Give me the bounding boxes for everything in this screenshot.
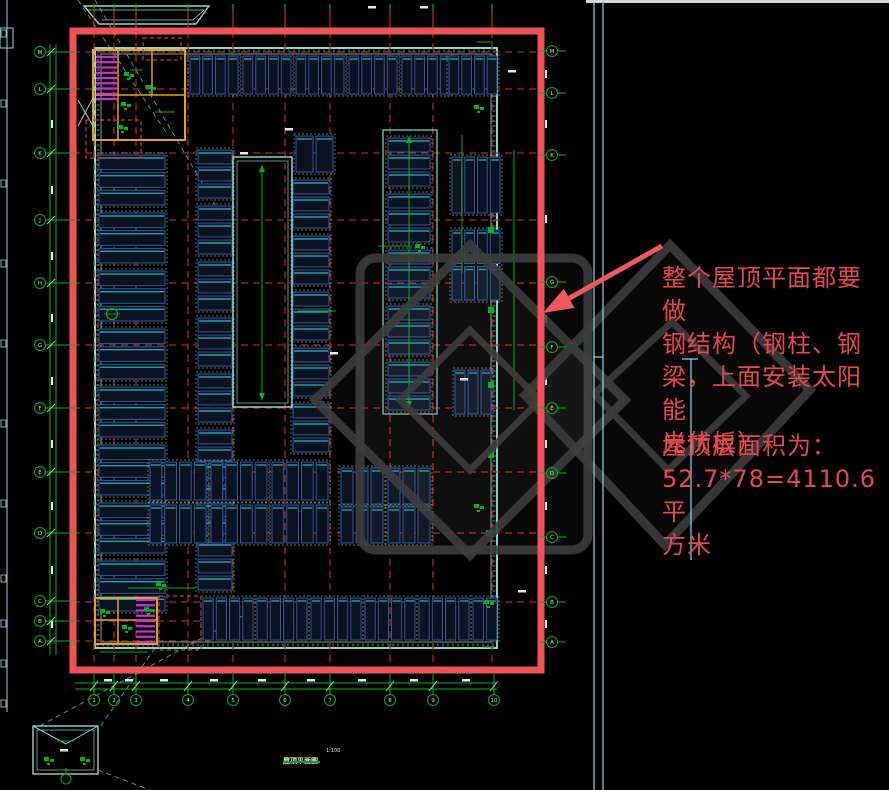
- solar-panel: [243, 56, 253, 94]
- solar-panel: [255, 462, 267, 500]
- axis-bubble-label: L: [550, 91, 554, 97]
- solar-panel: [402, 56, 412, 94]
- dim-text-mark: [51, 440, 53, 448]
- axis-bubble-label: 9: [431, 698, 435, 704]
- solar-panel: [99, 231, 165, 246]
- solar-panel: [198, 223, 232, 237]
- solar-panel: [198, 262, 232, 276]
- axis-bubble-label: D: [38, 531, 42, 537]
- solar-panel: [297, 598, 307, 640]
- solar-panel: [316, 136, 333, 172]
- solar-panel: [216, 598, 226, 640]
- axis-bubble-label: M: [38, 50, 43, 56]
- dim-text-mark: [358, 679, 366, 682]
- green-marker: [80, 757, 85, 761]
- green-marker: [159, 588, 162, 590]
- green-marker: [127, 104, 131, 107]
- green-marker: [44, 757, 49, 761]
- solar-panel: [99, 271, 165, 286]
- detail-box-bubble: [61, 774, 71, 784]
- green-marker: [149, 91, 152, 93]
- detail-callout-box: [33, 726, 98, 784]
- solar-panel: [99, 155, 165, 170]
- solar-panel: [99, 289, 165, 304]
- grid-tails: [94, 4, 492, 31]
- solar-panel: [99, 248, 165, 263]
- solar-panel: [293, 180, 329, 194]
- centerline-arrow-bottom: [259, 393, 265, 400]
- solar-panel: [338, 598, 348, 640]
- frame-glyph: [1, 575, 6, 582]
- axis-bubble-label: 4: [186, 698, 190, 704]
- green-marker: [144, 607, 149, 611]
- solar-panel: [194, 462, 206, 500]
- solar-panel: [459, 598, 469, 640]
- solar-panel: [255, 505, 267, 543]
- axis-bubble-label: A: [550, 640, 554, 646]
- solar-panel: [465, 157, 475, 213]
- dim-text-mark: [518, 590, 526, 593]
- axis-bubble-label: G: [550, 280, 554, 286]
- green-marker: [83, 763, 86, 765]
- solar-panel: [351, 598, 361, 640]
- axis-bubble-label: H: [38, 281, 42, 287]
- green-marker: [415, 244, 420, 248]
- solar-panel: [432, 598, 442, 640]
- dim-text-mark: [285, 128, 293, 131]
- axis-bubble-label: 6: [283, 698, 287, 704]
- dim-text-mark: [420, 6, 428, 9]
- dim-text-mark: [104, 679, 112, 682]
- solar-panel: [293, 421, 329, 435]
- green-marker: [477, 111, 480, 113]
- frame-glyph: [1, 700, 6, 707]
- solar-panel: [165, 462, 177, 500]
- frame-glyph: [1, 500, 6, 507]
- axis-bubble-label: A: [38, 639, 42, 645]
- green-marker: [118, 125, 123, 129]
- cad-viewport[interactable]: MLKJHGFEDCBAMLKGFEDCBA12345678910 整个屋顶平面…: [0, 0, 889, 790]
- green-marker: [50, 759, 54, 762]
- solar-panel: [270, 598, 280, 640]
- axis-bubble-label: K: [38, 151, 42, 157]
- dim-text-mark: [125, 679, 133, 682]
- axis-bubble-label: E: [38, 470, 42, 476]
- solar-panel: [293, 253, 329, 267]
- dim-text-mark: [368, 6, 376, 9]
- frame-glyph: [1, 620, 6, 627]
- solar-panel: [194, 505, 206, 543]
- green-marker: [127, 78, 130, 80]
- axis-bubble-label: E: [550, 406, 554, 412]
- solar-panel: [487, 56, 497, 94]
- axis-bubble-label: 2: [112, 698, 116, 704]
- axis-bubble-label: 7: [328, 698, 332, 704]
- solar-panel: [341, 507, 353, 543]
- annotation-note-roof-area: 屋顶层面积为： 52.7*78=4110.6平 方米: [662, 430, 884, 562]
- solar-panel: [462, 56, 472, 94]
- axis-bubble-label: B: [38, 619, 42, 625]
- frame-glyph: [1, 660, 6, 667]
- green-marker: [162, 584, 166, 587]
- solar-panel: [180, 505, 192, 543]
- solar-panel: [415, 56, 425, 94]
- solar-panel: [211, 505, 223, 543]
- solar-panel: [293, 292, 329, 306]
- solar-panel: [405, 598, 415, 640]
- frame-glyph: [1, 420, 6, 427]
- solar-panel: [293, 348, 329, 362]
- solar-panel: [365, 598, 375, 640]
- solar-panel: [309, 56, 319, 94]
- frame-glyph: [1, 30, 6, 37]
- solar-panel: [293, 326, 329, 340]
- solar-panel: [198, 391, 232, 405]
- green-marker: [421, 246, 425, 249]
- wall-node-marker: [488, 227, 494, 233]
- solar-panel: [198, 374, 232, 388]
- dim-text-mark: [410, 679, 418, 682]
- axis-bubble-label: J: [38, 218, 41, 224]
- green-marker: [121, 102, 126, 106]
- solar-panel: [428, 56, 438, 94]
- green-marker: [487, 606, 490, 608]
- axis-bubble-label: F: [38, 406, 41, 412]
- solar-panel: [473, 598, 484, 640]
- solar-panel: [293, 197, 329, 211]
- dim-text-mark: [210, 679, 218, 682]
- solar-panel: [293, 214, 329, 228]
- title-underline: [283, 761, 320, 763]
- solar-panel: [349, 56, 359, 94]
- solar-panel: [99, 364, 165, 379]
- solar-panel: [296, 56, 306, 94]
- dim-text-mark: [51, 377, 53, 385]
- solar-panel: [198, 542, 232, 556]
- centerline-arrow-top: [259, 165, 265, 172]
- dim-text-mark: [545, 70, 547, 78]
- green-marker: [150, 609, 154, 612]
- solar-panel: [198, 430, 232, 444]
- dim-text-mark: [545, 566, 547, 574]
- green-marker: [484, 600, 489, 604]
- dim-text-mark: [545, 620, 547, 628]
- solar-panel: [452, 157, 462, 213]
- leader-line: [98, 770, 150, 790]
- solar-panel: [316, 505, 328, 543]
- solar-panel: [190, 56, 200, 94]
- solar-panel: [99, 173, 165, 188]
- solar-panel: [99, 579, 165, 594]
- solar-panel: [228, 56, 238, 94]
- frame-glyph: [1, 340, 6, 347]
- solar-panel: [281, 56, 291, 94]
- green-marker: [480, 107, 484, 110]
- solar-panel: [293, 270, 329, 284]
- solar-panel: [256, 56, 266, 94]
- solar-panel: [198, 240, 232, 254]
- green-marker: [47, 763, 50, 765]
- axis-bubble-label: 1: [92, 698, 96, 704]
- axis-bubble-label: 8: [388, 698, 392, 704]
- axis-bubble-label: G: [38, 343, 42, 349]
- axis-bubble-label: M: [550, 49, 555, 55]
- solar-panel: [198, 408, 232, 422]
- drawing-scale: 1:100: [326, 748, 340, 754]
- green-marker: [152, 87, 156, 90]
- top-edge-strip: [586, 0, 889, 3]
- solar-panel: [226, 462, 238, 500]
- solar-panel: [269, 56, 279, 94]
- dim-text-mark: [51, 502, 53, 510]
- solar-panel: [334, 56, 344, 94]
- frame-glyph: [1, 260, 6, 267]
- axis-bubble-label: 10: [491, 698, 498, 704]
- solar-panel: [362, 56, 372, 94]
- solar-panel: [150, 505, 162, 543]
- axis-bubble-label: C: [38, 599, 42, 605]
- dim-text-mark: [545, 215, 547, 223]
- solar-panel: [198, 184, 232, 198]
- solar-panel: [378, 598, 388, 640]
- green-marker: [100, 609, 105, 613]
- solar-panel: [198, 447, 232, 461]
- solar-panel: [302, 462, 314, 500]
- axis-bubble-label: D: [550, 471, 554, 477]
- green-marker: [86, 759, 90, 762]
- axis-bubble-label: C: [550, 535, 554, 541]
- solar-panel: [316, 462, 328, 500]
- green-marker: [125, 631, 128, 633]
- green-marker: [474, 105, 479, 109]
- solar-panel: [241, 505, 253, 543]
- solar-panel: [198, 279, 232, 293]
- dim-text-mark: [462, 679, 470, 682]
- solar-panel: [99, 347, 165, 362]
- green-marker: [124, 127, 128, 130]
- green-marker: [122, 625, 127, 629]
- solar-panel: [324, 598, 334, 640]
- solar-panel: [198, 559, 232, 573]
- solar-panel: [296, 136, 313, 172]
- solar-panel: [311, 598, 321, 640]
- solar-panel: [241, 462, 253, 500]
- solar-panel: [99, 190, 165, 205]
- solar-panel: [226, 505, 238, 543]
- axis-bubble-label: 3: [134, 698, 138, 704]
- green-marker: [124, 72, 129, 76]
- solar-panel: [99, 445, 165, 460]
- solar-panel: [272, 462, 284, 500]
- solar-panel: [198, 296, 232, 310]
- solar-panel: [490, 157, 500, 213]
- solar-panel: [446, 598, 456, 640]
- solar-panel: [302, 505, 314, 543]
- solar-panel: [165, 505, 177, 543]
- solar-panel: [211, 462, 223, 500]
- green-marker: [147, 613, 150, 615]
- solar-panel: [375, 56, 385, 94]
- solar-panel: [99, 405, 165, 420]
- dim-text-mark: [51, 252, 53, 260]
- dim-text-mark: [240, 152, 248, 155]
- solar-panel: [203, 56, 213, 94]
- dim-text-mark: [545, 120, 547, 128]
- roof-canopy-outline: [84, 6, 209, 24]
- green-marker: [418, 250, 421, 252]
- solar-panel: [99, 213, 165, 228]
- axis-bubble-label: 5: [231, 698, 235, 704]
- green-marker: [490, 602, 494, 605]
- solar-panel: [341, 468, 353, 504]
- solar-panel: [293, 438, 329, 452]
- solar-panel: [99, 422, 165, 437]
- solar-panel: [99, 329, 165, 344]
- drawing-title-block: 屋顶平面图1:100: [283, 748, 340, 767]
- frame-glyph: [1, 180, 6, 187]
- solar-panel: [293, 365, 329, 379]
- solar-panel: [392, 598, 402, 640]
- green-marker: [121, 131, 124, 133]
- dim-text-mark: [60, 749, 68, 752]
- solar-panel: [293, 236, 329, 250]
- solar-panel: [99, 387, 165, 402]
- solar-panel: [198, 335, 232, 349]
- solar-panel: [203, 598, 213, 640]
- solar-panel: [99, 561, 165, 576]
- dim-text-mark: [258, 679, 266, 682]
- solar-panel: [287, 505, 299, 543]
- solar-panel: [419, 598, 429, 640]
- solar-panel: [198, 352, 232, 366]
- dim-text-mark: [508, 70, 516, 73]
- green-marker: [106, 611, 110, 614]
- dim-text-mark: [330, 352, 338, 355]
- solar-panel: [216, 56, 226, 94]
- solar-panel: [198, 167, 232, 181]
- green-marker: [156, 582, 161, 586]
- solar-panel: [287, 462, 299, 500]
- solar-panel: [272, 505, 284, 543]
- solar-panel: [243, 598, 253, 640]
- solar-panel: [198, 576, 232, 590]
- axis-bubble-label: K: [550, 153, 554, 159]
- solar-panel: [198, 318, 232, 332]
- solar-panel: [478, 157, 488, 213]
- solar-panel: [475, 56, 485, 94]
- solar-panel: [322, 56, 332, 94]
- solar-panel: [449, 56, 459, 94]
- dim-text-mark: [307, 679, 315, 682]
- green-marker: [146, 85, 151, 89]
- green-marker: [128, 627, 132, 630]
- dim-text-mark: [51, 566, 53, 574]
- dim-text-mark: [51, 186, 53, 194]
- solar-panel: [198, 150, 232, 164]
- dim-text-mark: [51, 314, 53, 322]
- solar-panel: [284, 598, 294, 640]
- solar-panel: [257, 598, 267, 640]
- green-marker: [124, 108, 127, 110]
- dim-text-mark: [160, 679, 168, 682]
- stairwell-top-left: [93, 50, 185, 140]
- solar-panel: [387, 56, 397, 94]
- solar-panel: [230, 598, 240, 640]
- solar-panel: [150, 462, 162, 500]
- green-marker: [130, 74, 134, 77]
- axis-bubble-label: L: [38, 87, 42, 93]
- axis-bubble-label: B: [550, 600, 554, 606]
- frame-glyph: [1, 100, 6, 107]
- solar-panel: [180, 462, 192, 500]
- green-marker: [103, 615, 106, 617]
- dim-text-mark: [51, 120, 53, 128]
- axis-bubble-label: F: [550, 345, 553, 351]
- solar-panel: [198, 206, 232, 220]
